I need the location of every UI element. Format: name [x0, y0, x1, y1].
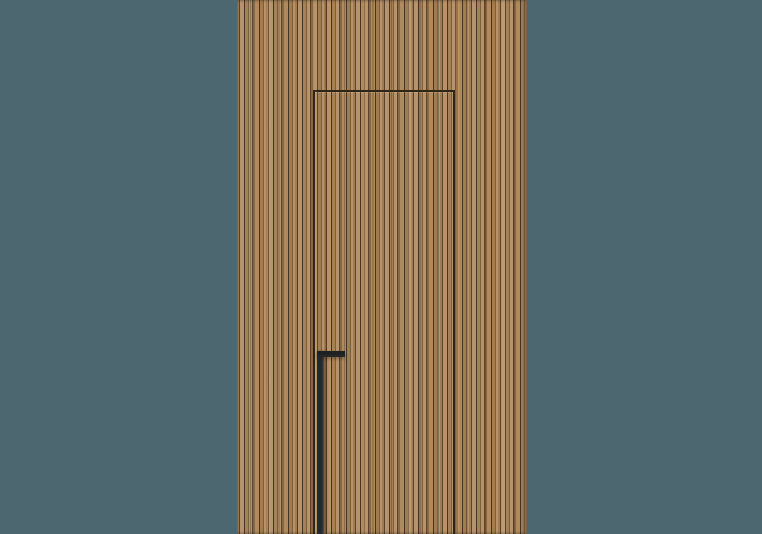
door-handle-top-bar — [317, 351, 345, 357]
door-handle-vertical-bar — [317, 351, 324, 534]
door-handle — [317, 351, 345, 534]
wood-slat-panel — [237, 0, 527, 534]
door-gap-top — [313, 90, 455, 92]
door-gap-left — [313, 90, 315, 534]
door-product-image — [0, 0, 762, 534]
door-gap-right — [453, 90, 455, 534]
